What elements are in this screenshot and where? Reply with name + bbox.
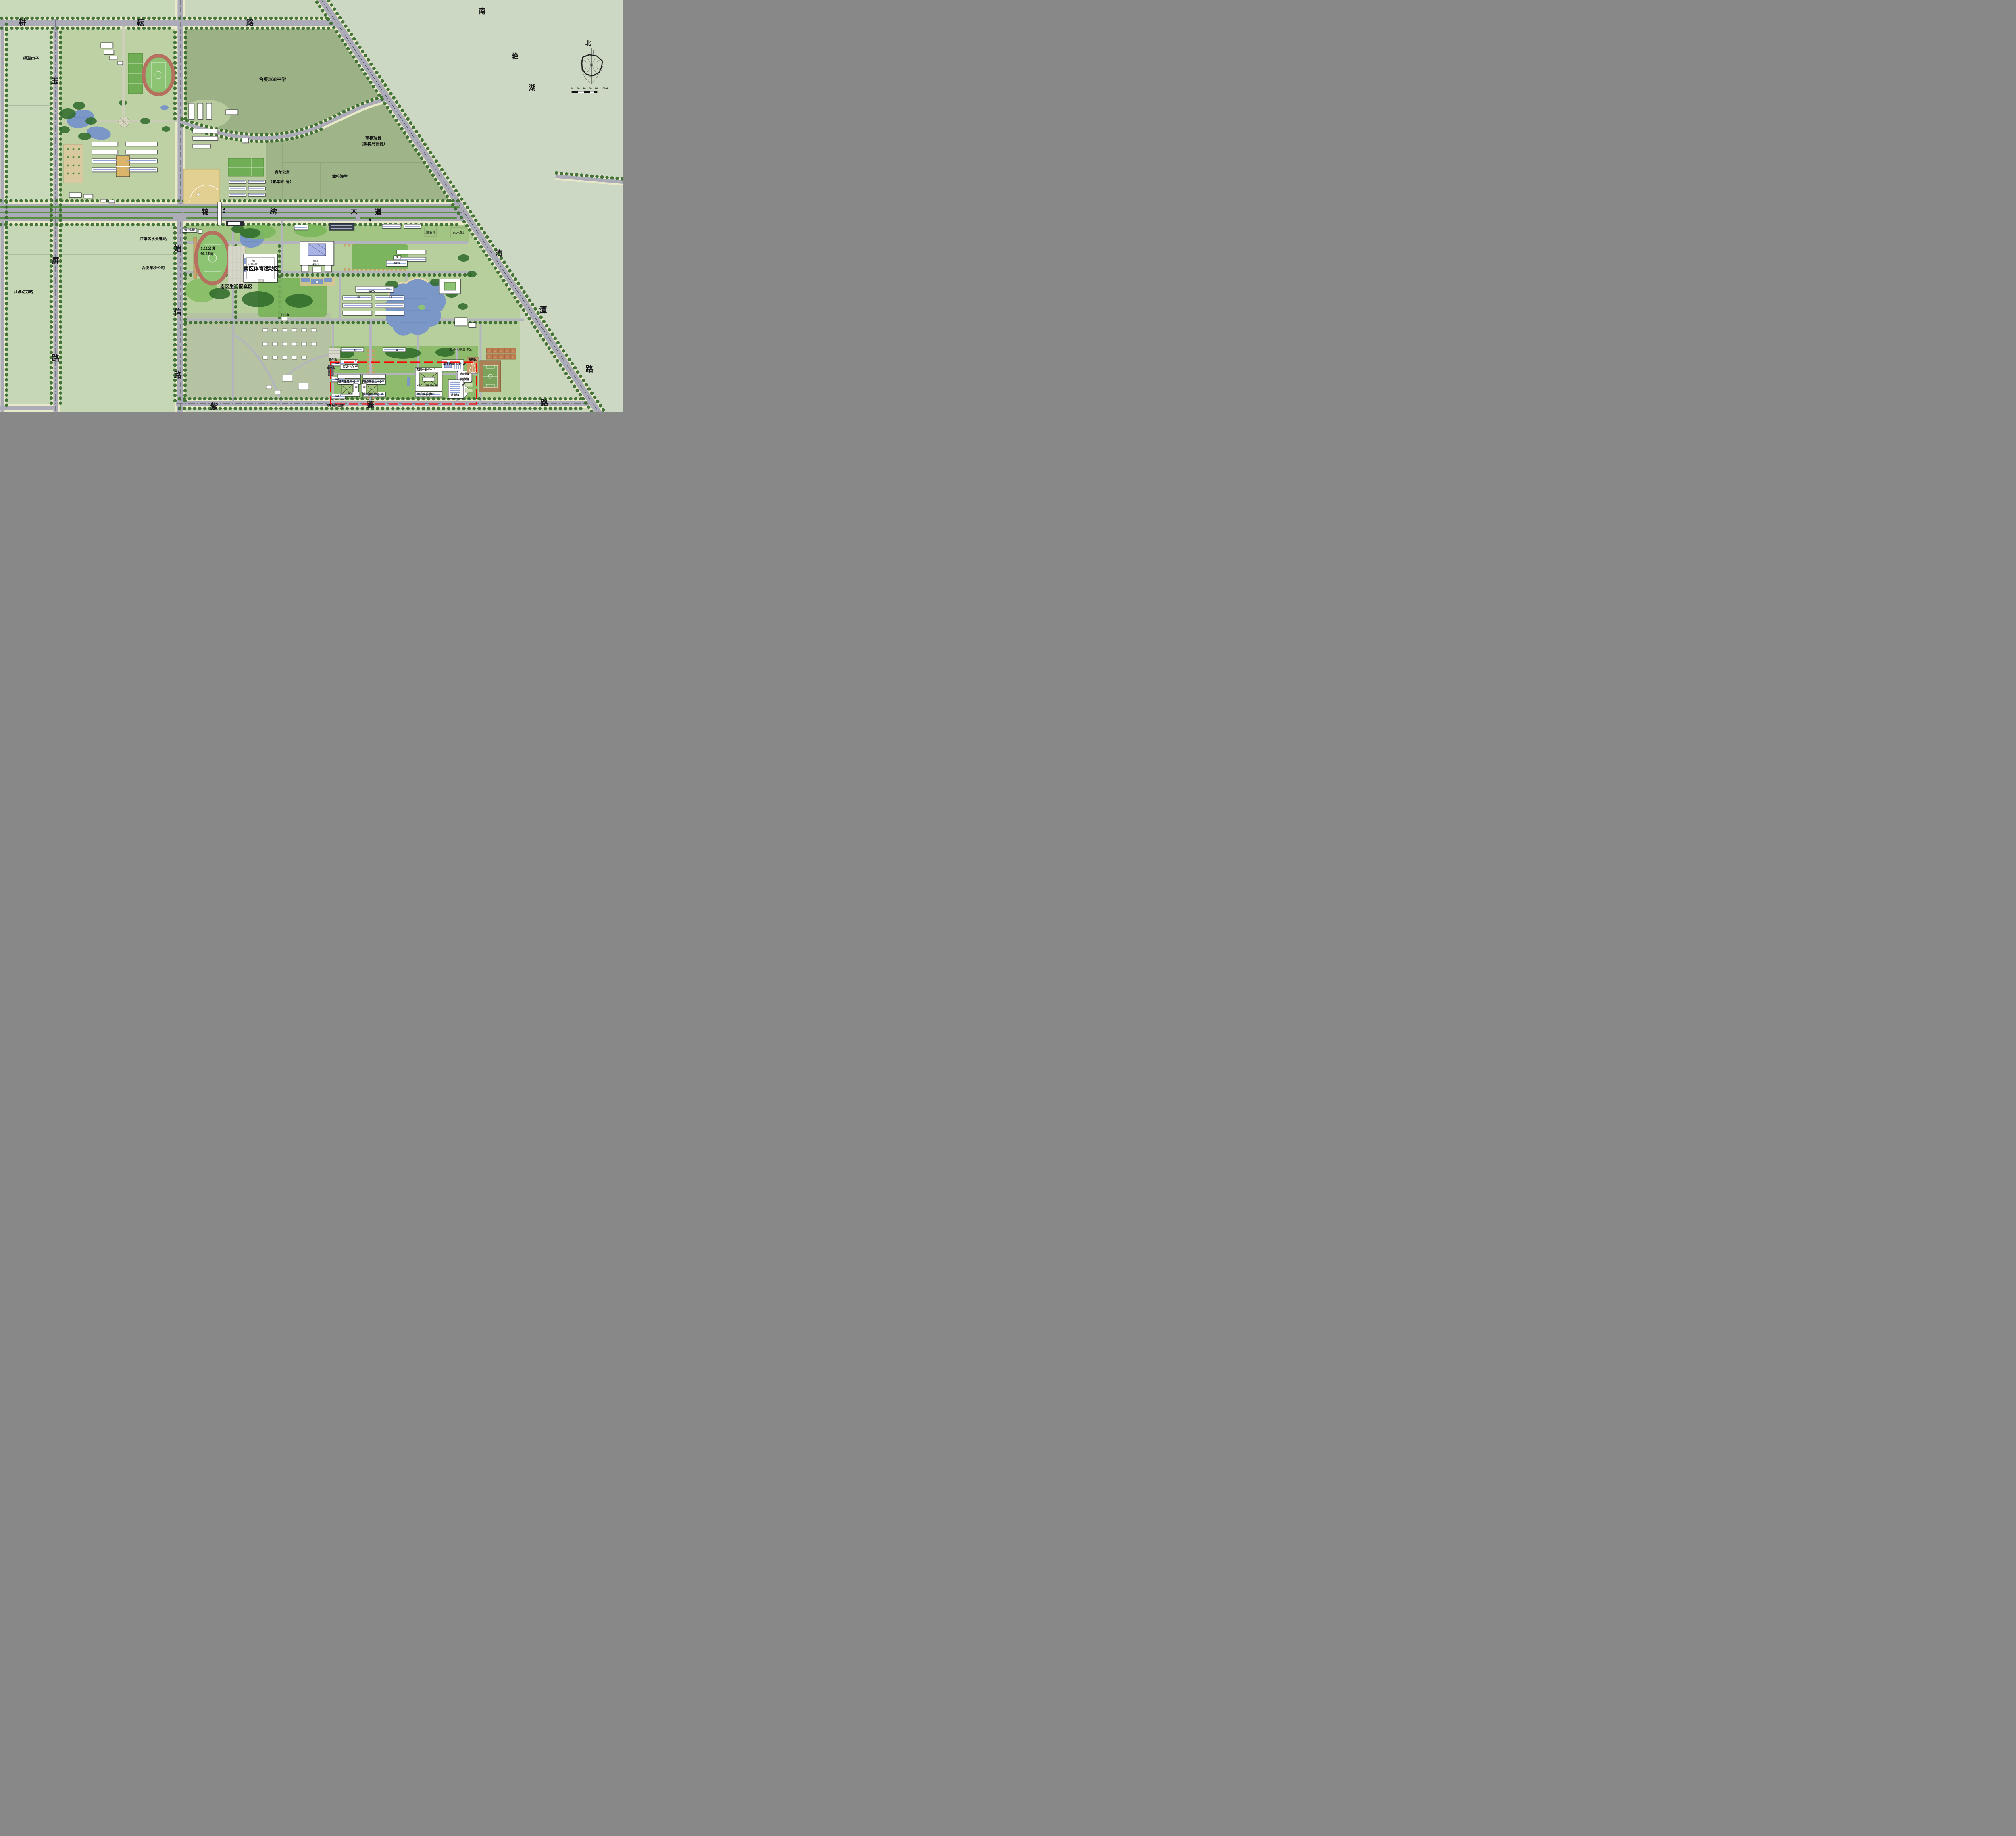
label-sewage-pump: 污水泵厂 [453,231,467,235]
label-graduate-building: 研究生教育楼 [338,381,355,383]
road-label-zipeng-1: 紫 [210,403,218,411]
road-label-jinxiu-2: 绣 [270,208,277,215]
label-youth-apartment-sub: （青年城1号） [269,180,294,184]
tag-slab-len: 28900 [394,262,400,265]
label-parking: 停车场 [329,358,337,361]
label-power-room: 配电房 [327,367,335,370]
tag-f4-b: 4F [362,387,365,389]
label-south-living-zone: 南区生活配套区 [220,285,253,290]
road-label-shixin-2: 信 [174,309,181,317]
label-student-service: 学生服务中心 [362,393,379,396]
road-label-gengyun-1: 耕 [18,19,26,27]
tag-f6-g: 6F [396,349,398,352]
tag-f1-a: 1F [353,361,356,363]
tag-f6-b: 6F [356,381,359,383]
campus-master-plan-map: 耕 耘 路 玉 屏 路 锦 绣 大 道 始 信 路 清 潭 路 紫 蓬 路 南 … [0,0,623,412]
road-label-qingtan-3: 路 [585,366,593,373]
tag-f11-b: 11F [335,378,339,381]
tag-f6-d: 6F [381,381,384,383]
label-outdoor-zone: 室外天然活动区 [449,348,472,351]
label-gas-station: 加油站 [425,231,436,234]
tag-f4-a: 4F [354,387,357,389]
label-south-sports-zone: 南区体育运动区 [244,266,279,271]
road-label-jinxiu-4: 道 [375,209,382,216]
tag-f11-d: 11F [431,393,435,396]
tag-f1-b: 1F [329,371,332,374]
tag-f4-d: 4F [417,385,420,387]
road-label-gengyun-2: 耘 [136,19,144,27]
tag-f6-h: 6F [396,256,398,259]
road-label-jinxiu-1: 锦 [202,209,209,216]
boulevard-medians [0,206,460,219]
label-throwing-area: 投掷区 [469,358,477,361]
road-label-yuping-2: 屏 [52,257,59,265]
label-gate-house: 门卫房 [281,314,289,317]
scale-tick-80: 80 [595,88,598,90]
lake-label-nanyan-2: 艳 [512,53,519,60]
scale-tick-0: 0 [571,88,573,90]
map-graphics [0,0,623,412]
label-sewage-station: 江淮污水处理站 [140,237,167,241]
label-wushu-hall: 武术馆 [460,378,469,381]
label-youth-apartment: 青年公寓 [275,171,290,175]
label-track-mu: 46.65亩 [200,252,213,256]
tag-f11-c: 11F [335,395,339,398]
lake-label-nanyan-1: 南 [479,8,486,15]
tag-f3-b: 3F [389,297,392,299]
tag-gym-area: 13183.88 [248,263,258,265]
tag-dorm-len: 22000 [369,290,375,292]
tag-f4-e: 4F [424,385,427,387]
road-label-shixin-3: 路 [174,372,181,379]
football-field [480,361,501,392]
scale-tick-60: 60 [589,88,591,90]
road-label-yuping-1: 玉 [51,78,58,85]
tag-f6-a: 6F [355,366,358,368]
label-derun: 得润电子 [23,57,39,61]
tag-lib-area: 41479 [312,263,319,266]
tag-f1-c: 1F [432,369,435,371]
label-swimming-hall: 游泳馆 [451,394,459,397]
label-fencing-hall: 击剑馆 [460,373,469,376]
label-innovation-center: 学生创新创业中心 [362,381,382,383]
road-label-qingtan-1: 清 [495,250,502,258]
label-student-activity: 学生活动中心 [443,363,460,366]
label-training-center-west: 实训中心 [343,366,354,369]
tag-f1-d: 1F [435,385,437,387]
label-track-hectare: 3.11公顷 [201,247,216,251]
compass-north-label: 北 [585,40,591,46]
label-power-station: 江淮动力站 [14,290,33,294]
tag-f6-c: 6F [348,393,350,395]
road-label-jinxiu-3: 大 [351,208,358,215]
tag-f2-a: 2F [463,363,466,365]
label-youth-teacher-housing: 青年教师过渡房 [326,405,345,408]
tag-h15-b: H=15m [427,385,434,387]
label-nanyan-ruijing-sub: （国税局宿舍） [359,142,387,146]
road-label-zipeng-2: 蓬 [367,402,374,409]
tag-f11-e: 11F [386,288,390,291]
road-label-shixin-1: 始 [174,245,181,253]
road-label-zipeng-3: 路 [540,400,548,407]
tag-f6-f: 6F [354,349,357,352]
road-label-qingtan-2: 潭 [539,307,547,315]
scale-tick-40: 40 [583,88,585,90]
tag-f3-a: 3F [357,297,360,299]
tag-f6-e: 6F [381,393,383,396]
tag-gym-no: 7931 [250,260,255,263]
tag-h15-a: H=15m [425,369,432,371]
label-de-center: 德中心楼 [184,229,195,232]
label-comprehensive-lab: 综合实验楼 [417,393,431,396]
tag-f11-a: 11F [335,362,339,365]
lake-label-nanyan-3: 湖 [529,85,536,92]
scale-end-label: 100M [601,88,608,90]
tag-f4-c: 4F [458,363,461,365]
tag-f2-b: 2F [462,384,465,387]
label-nanyan-ruijing: 南艳瑞景 [365,137,381,141]
label-168-school: 合肥168中学 [259,77,286,82]
label-cheqiao: 合肥车桥公司 [142,266,165,270]
scale-bar [572,91,597,93]
road-label-gengyun-3: 路 [246,19,254,27]
label-jinyu-coast: 金屿海岸 [332,175,348,179]
road-label-yuping-3: 路 [52,355,59,363]
tag-lib-no: 9021 [313,260,318,263]
scale-tick-20: 20 [577,88,579,90]
